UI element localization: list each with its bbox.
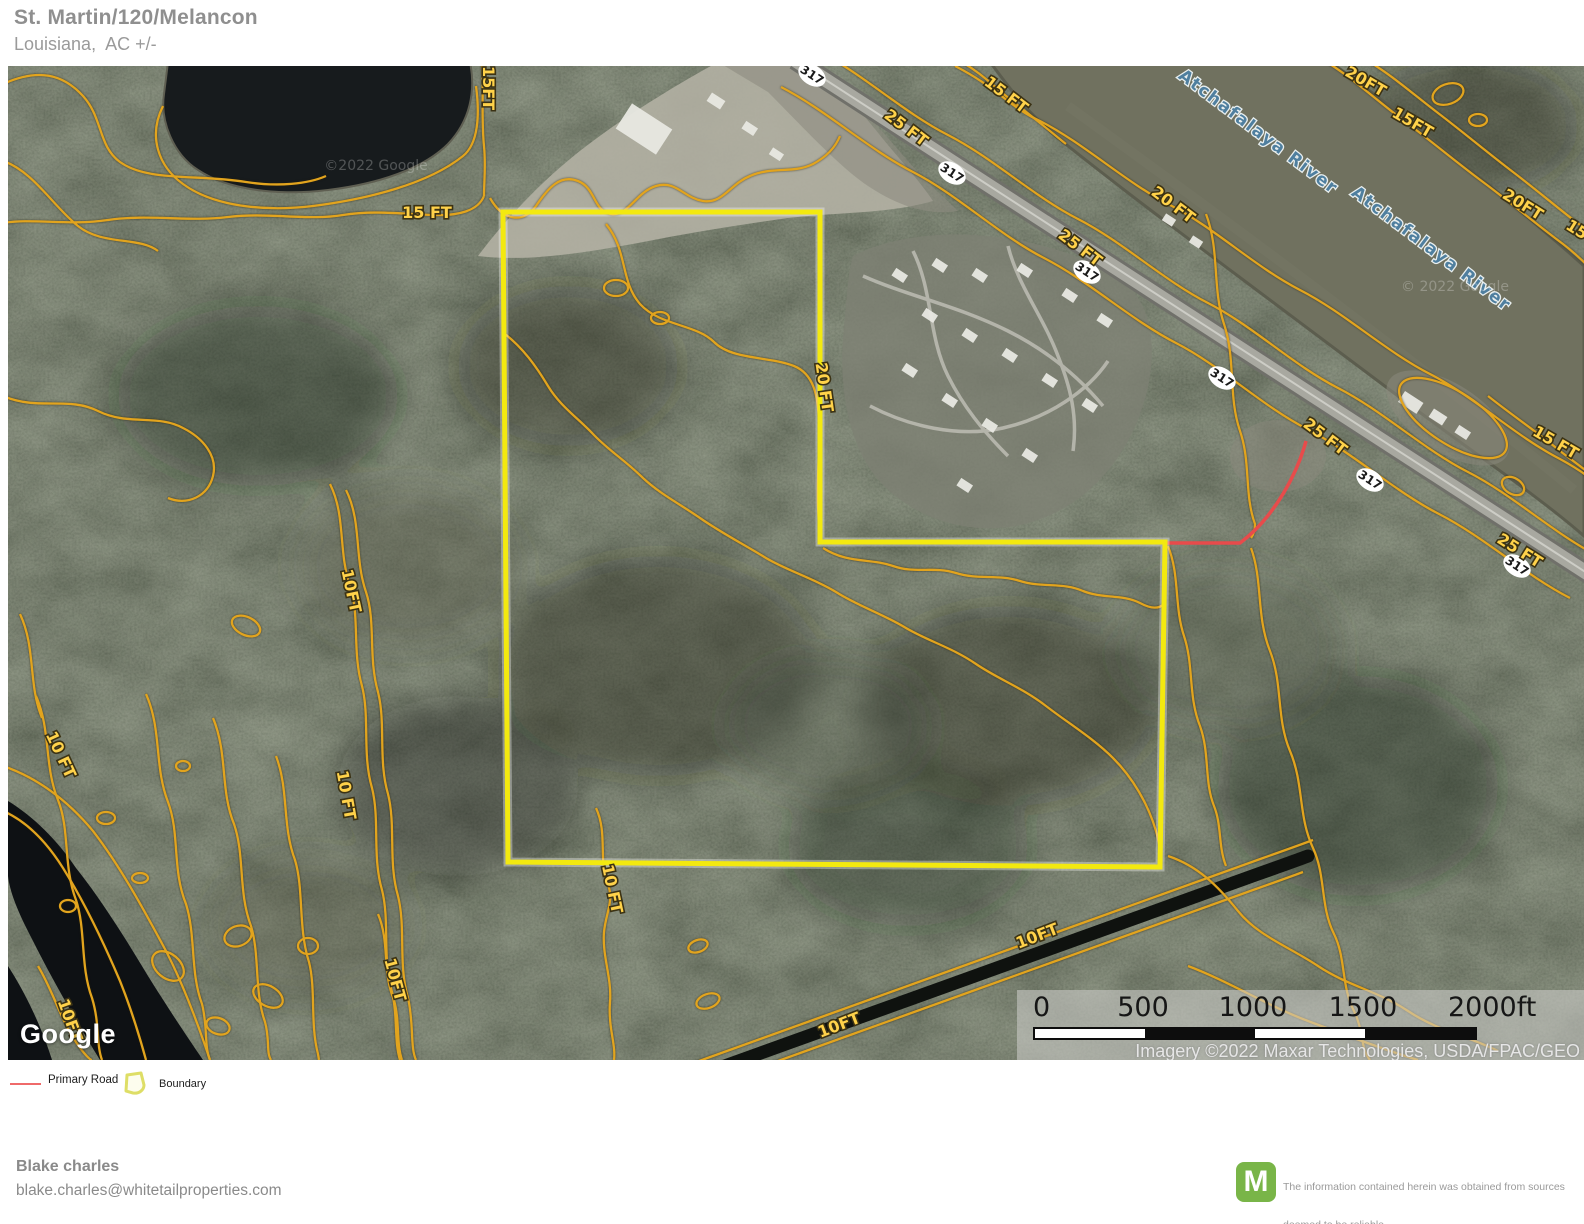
svg-text:© 2022 Google: © 2022 Google (1401, 279, 1509, 295)
scale-tick: 500 (1117, 992, 1169, 1023)
disclaimer: The information contained herein was obt… (1283, 1156, 1583, 1224)
page-subtitle: Louisiana, AC +/- (14, 34, 258, 55)
svg-text:15FT: 15FT (479, 66, 498, 110)
mapright-logo: M (1236, 1162, 1276, 1202)
scale-tick: 2000ft (1448, 992, 1536, 1023)
scale-bar: 0 500 1000 1500 2000ft Imagery ©2022 Max… (1017, 990, 1584, 1060)
svg-text:15 FT: 15 FT (402, 203, 452, 222)
svg-text:©2022 Google: ©2022 Google (324, 158, 427, 174)
primary-road-legend-label: Primary Road (48, 1074, 118, 1086)
page-title: St. Martin/120/Melancon (14, 6, 258, 30)
google-logo[interactable]: Google (20, 1019, 116, 1050)
agent-email: blake.charles@whitetailproperties.com (16, 1182, 282, 1200)
scale-tick: 1500 (1329, 992, 1398, 1023)
scale-bar-segments (1033, 1027, 1477, 1040)
map-legend: Primary Road Boundary (0, 1060, 1584, 1120)
boundary-legend-icon (120, 1070, 148, 1098)
primary-road-legend-swatch (10, 1083, 41, 1085)
footer: Blake charles blake.charles@whitetailpro… (0, 1140, 1584, 1224)
satellite-map[interactable]: 317 317 317 317 317 317 15FT 15 FT 25 FT… (8, 66, 1584, 1060)
agent-name: Blake charles (16, 1158, 119, 1176)
imagery-attribution: Imagery ©2022 Maxar Technologies, USDA/F… (1135, 1041, 1580, 1060)
map-header: St. Martin/120/Melancon Louisiana, AC +/… (14, 6, 258, 55)
scale-tick: 0 (1033, 992, 1050, 1023)
scale-tick: 1000 (1219, 992, 1288, 1023)
boundary-legend-label: Boundary (159, 1078, 206, 1090)
